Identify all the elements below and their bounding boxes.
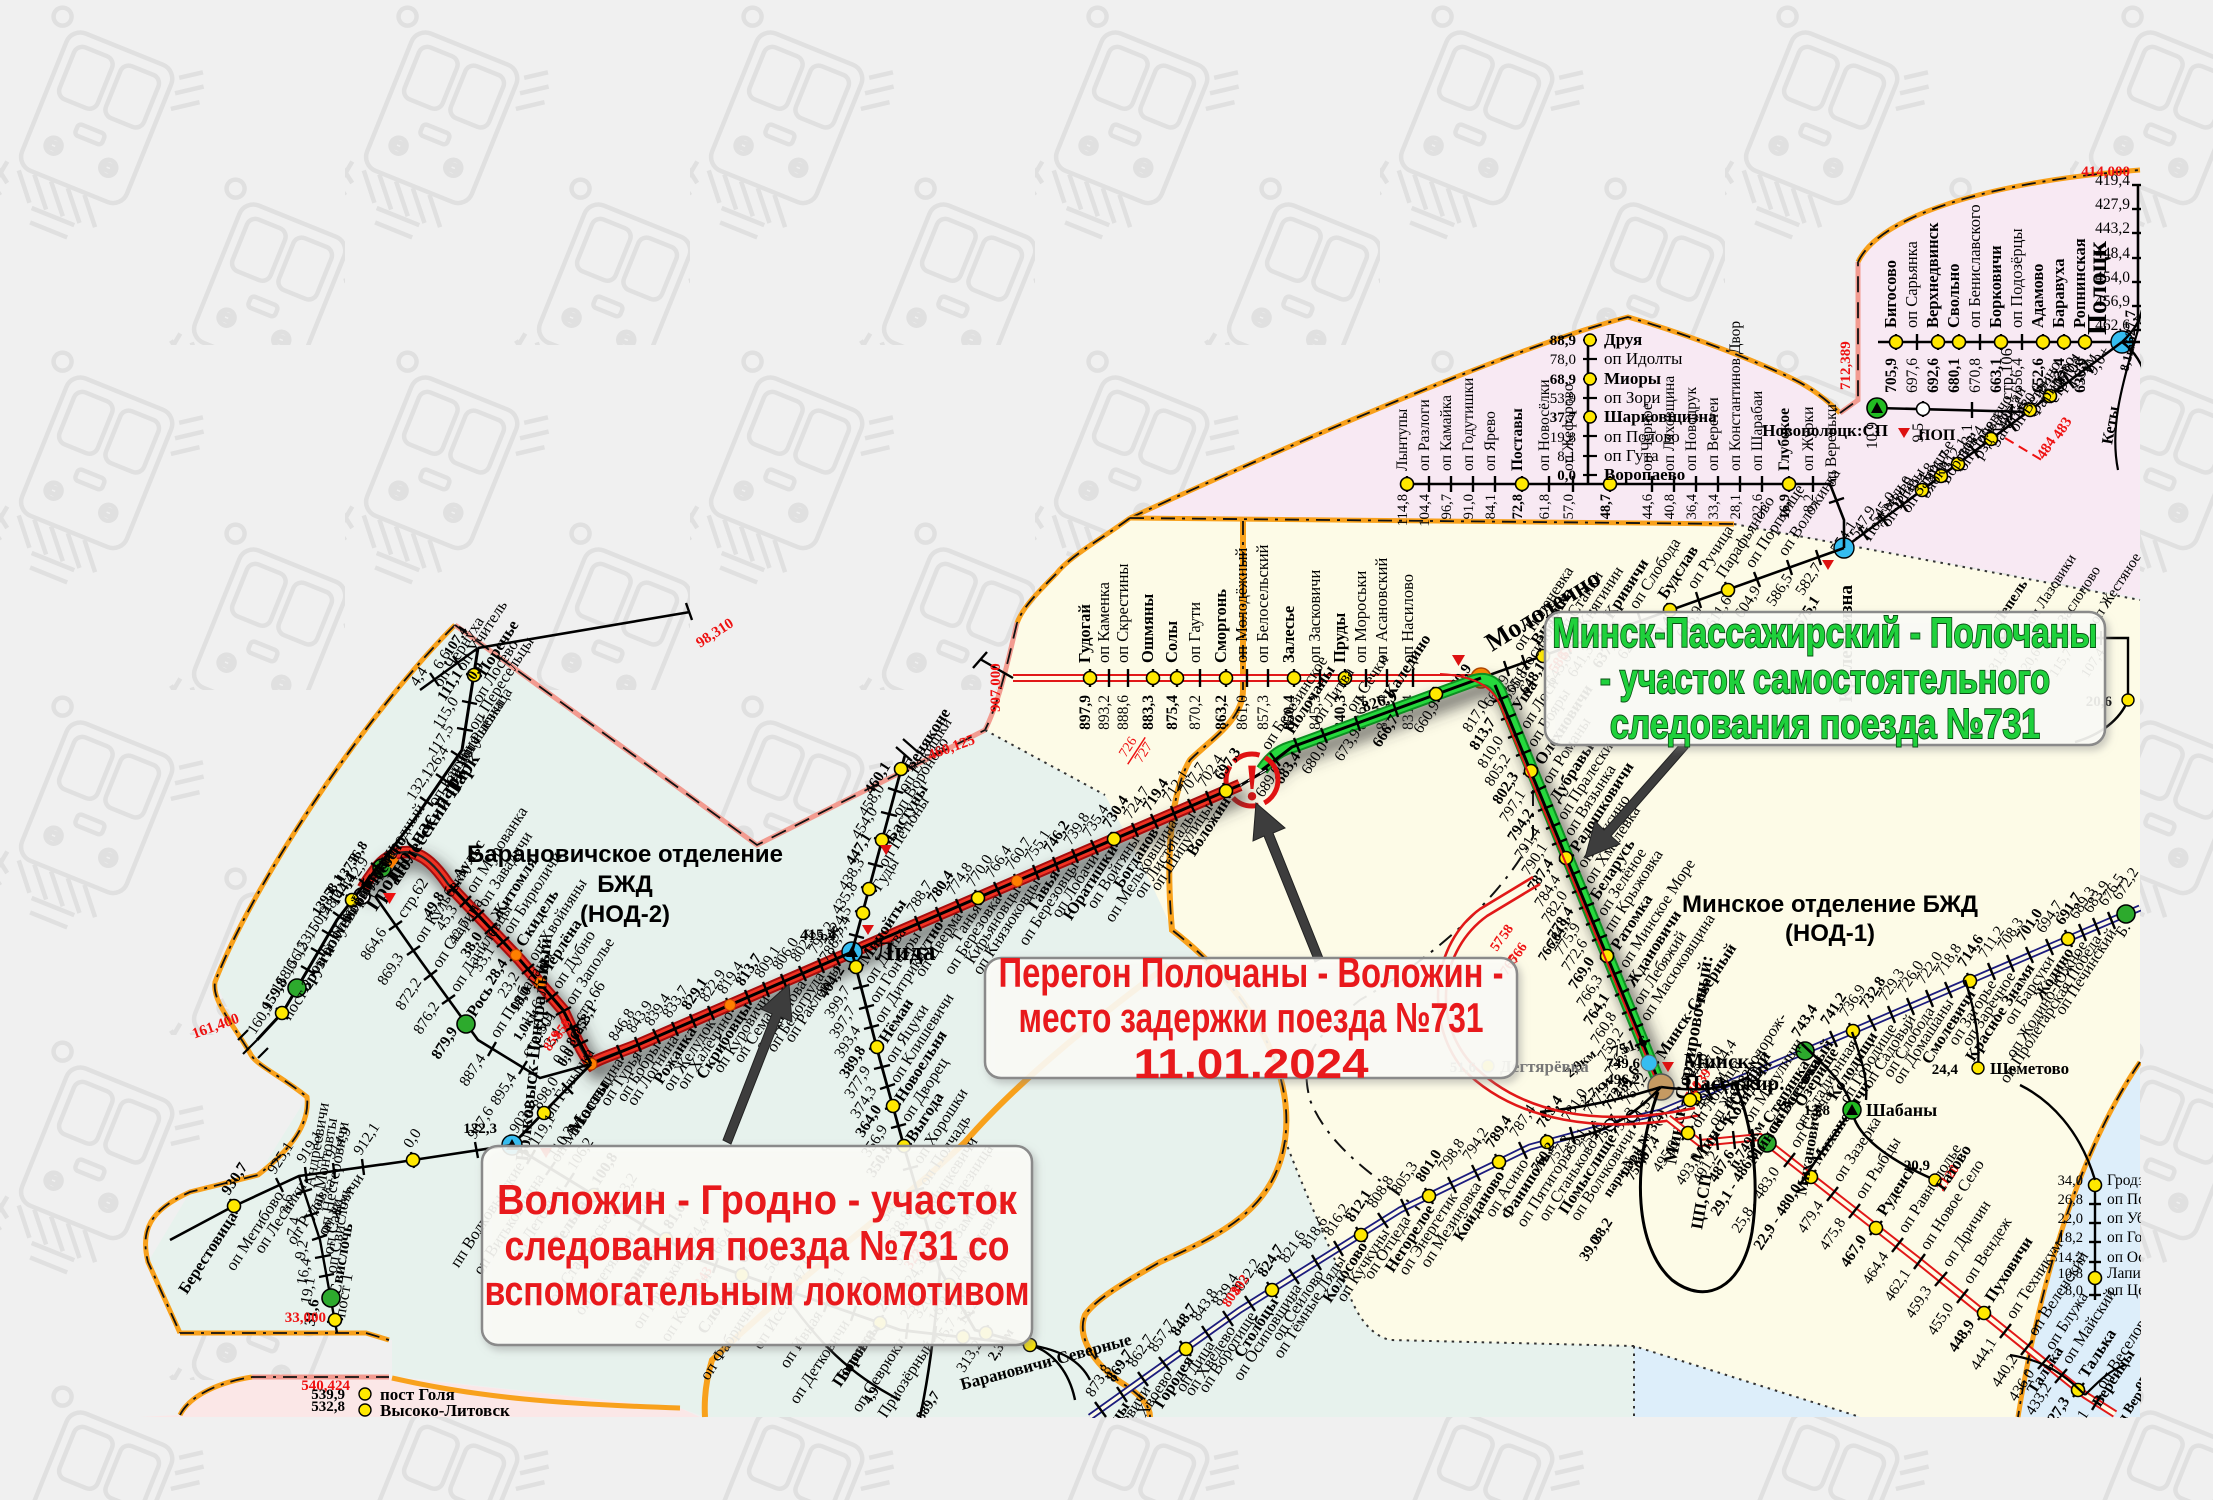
svg-text:Воропаево: Воропаево — [1604, 465, 1685, 484]
svg-text:Минск-Пассажирский - Полочаны: Минск-Пассажирский - Полочаны — [1553, 609, 2098, 656]
svg-text:место задержки поезда №731: место задержки поезда №731 — [1019, 994, 1484, 1041]
svg-text:БЖД: БЖД — [597, 871, 652, 898]
svg-text:Гудогай: Гудогай — [1075, 604, 1094, 663]
svg-text:907,000: 907,000 — [988, 663, 1004, 712]
svg-text:448,4: 448,4 — [2095, 245, 2130, 262]
svg-text:14,2: 14,2 — [2058, 1250, 2083, 1266]
svg-text:72,8: 72,8 — [1510, 494, 1526, 519]
svg-text:Барановичское отделение: Барановичское отделение — [467, 841, 783, 868]
svg-text:Шарковщизна: Шарковщизна — [1604, 407, 1717, 426]
svg-text:оп Бениславского: оп Бениславского — [1965, 204, 1984, 328]
svg-text:19,8: 19,8 — [1550, 430, 1576, 446]
svg-text:692,6: 692,6 — [1925, 358, 1942, 393]
svg-text:оп Разлоги: оп Разлоги — [1416, 399, 1433, 471]
svg-text:Миоры: Миоры — [1604, 369, 1661, 388]
svg-text:оп Полово: оп Полово — [1604, 427, 1680, 446]
svg-text:следования поезда №731: следования поезда №731 — [1610, 700, 2040, 747]
svg-text:Пруды: Пруды — [1330, 613, 1349, 663]
svg-text:Поставы: Поставы — [1509, 408, 1526, 471]
svg-text:оп Камайка: оп Камайка — [1438, 395, 1455, 471]
svg-text:Шеметово: Шеметово — [1990, 1059, 2069, 1078]
svg-text:11.01.2024: 11.01.2024 — [1134, 1040, 1370, 1087]
svg-text:оп Молодёжный: оп Молодёжный — [1232, 547, 1251, 663]
svg-text:28,1: 28,1 — [1728, 494, 1744, 519]
svg-text:33,000: 33,000 — [285, 1310, 326, 1326]
svg-text:Ошмяны: Ошмяны — [1138, 594, 1157, 663]
svg-text:Воложин - Гродно - участок: Воложин - Гродно - участок — [497, 1176, 1018, 1223]
svg-text:893,2: 893,2 — [1096, 695, 1113, 730]
svg-text:оп Журки: оп Журки — [1800, 407, 1817, 471]
svg-text:18,2: 18,2 — [2058, 1230, 2083, 1246]
svg-text:0,0: 0,0 — [1557, 468, 1576, 484]
svg-text:Залесье: Залесье — [1279, 606, 1298, 663]
svg-text:532,8: 532,8 — [311, 1399, 345, 1415]
svg-text:Шабаны: Шабаны — [1866, 1100, 1937, 1120]
svg-text:Адамово: Адамово — [2028, 264, 2047, 328]
svg-text:875,4: 875,4 — [1164, 695, 1181, 730]
svg-text:863,2: 863,2 — [1213, 695, 1230, 730]
svg-text:680,1: 680,1 — [1946, 358, 1963, 393]
svg-text:26,8: 26,8 — [2058, 1192, 2083, 1208]
svg-text:61,8: 61,8 — [1537, 494, 1553, 519]
svg-text:20,9: 20,9 — [1904, 1158, 1930, 1174]
svg-text:883,3: 883,3 — [1140, 695, 1157, 730]
svg-text:8,1: 8,1 — [1557, 449, 1576, 465]
svg-text:456,9: 456,9 — [2095, 293, 2130, 310]
svg-text:861,0: 861,0 — [1234, 695, 1251, 730]
svg-text:705,9: 705,9 — [1883, 358, 1900, 393]
svg-text:!: ! — [1243, 755, 1260, 812]
svg-text:оп Идолты: оп Идолты — [1604, 349, 1683, 368]
svg-text:(НОД-1): (НОД-1) — [1785, 920, 1875, 947]
svg-text:443,2: 443,2 — [2095, 220, 2130, 237]
svg-text:оп Асановский: оп Асановский — [1372, 557, 1391, 663]
svg-text:Верхнедвинск: Верхнедвинск — [1923, 222, 1942, 328]
svg-text:670,8: 670,8 — [1967, 358, 1984, 393]
svg-text:Перегон Полочаны - Воложин -: Перегон Полочаны - Воложин - — [999, 949, 1504, 996]
svg-text:оп Подозёрцы: оп Подозёрцы — [2007, 228, 2026, 328]
svg-text:Свольно: Свольно — [1944, 264, 1963, 329]
svg-text:оп Константинов Двор: оп Константинов Двор — [1727, 321, 1744, 471]
svg-text:8,0: 8,0 — [2065, 1283, 2083, 1299]
svg-text:697,6: 697,6 — [1904, 358, 1921, 393]
svg-text:37,7: 37,7 — [1550, 410, 1577, 426]
svg-text:оп Засковичи: оп Засковичи — [1305, 570, 1324, 663]
svg-text:22,0: 22,0 — [2058, 1211, 2083, 1227]
svg-text:48,7: 48,7 — [1598, 494, 1614, 519]
svg-text:оп Гута: оп Гута — [1604, 446, 1659, 465]
svg-text:7,4: 7,4 — [284, 1215, 304, 1237]
svg-text:Друя: Друя — [1604, 330, 1642, 349]
svg-text:оп Новодрук: оп Новодрук — [1683, 386, 1700, 471]
svg-text:57,0: 57,0 — [1561, 494, 1577, 519]
svg-text:53,9: 53,9 — [1550, 391, 1576, 407]
svg-text:78,0: 78,0 — [1550, 352, 1576, 368]
svg-text:40,8: 40,8 — [1662, 494, 1678, 519]
svg-text:Минское отделение БЖД: Минское отделение БЖД — [1682, 891, 1978, 918]
svg-text:96,7: 96,7 — [1439, 494, 1455, 519]
svg-text:91,0: 91,0 — [1461, 494, 1477, 519]
svg-text:оп Ярево: оп Ярево — [1482, 411, 1499, 471]
svg-text:44,6: 44,6 — [1640, 494, 1656, 519]
svg-text:оп Шарабаи: оп Шарабаи — [1749, 391, 1766, 471]
svg-text:68,9: 68,9 — [1550, 372, 1576, 388]
svg-text:462,6: 462,6 — [2095, 317, 2130, 334]
svg-text:Борковичи: Борковичи — [1986, 245, 2005, 328]
svg-text:33,4: 33,4 — [1706, 493, 1722, 519]
svg-text:вспомогательным локомотивом: вспомогательным локомотивом — [485, 1267, 1030, 1314]
svg-text:34,0: 34,0 — [2058, 1173, 2083, 1189]
svg-text:оп Сарьянка: оп Сарьянка — [1902, 241, 1921, 328]
svg-text:36,4: 36,4 — [1684, 493, 1700, 519]
svg-text:Лынтупы: Лынтупы — [1394, 408, 1411, 471]
svg-text:10,8: 10,8 — [2058, 1266, 2083, 1282]
svg-text:414,000: 414,000 — [2081, 164, 2130, 180]
svg-text:оп Годутишки: оп Годутишки — [1460, 378, 1477, 471]
svg-text:Глубокое: Глубокое — [1776, 408, 1793, 471]
svg-text:Сморгонь: Сморгонь — [1211, 589, 1230, 663]
svg-text:оп Каменка: оп Каменка — [1094, 581, 1113, 663]
svg-text:следования поезда №731 со: следования поезда №731 со — [505, 1222, 1010, 1269]
svg-text:88,9: 88,9 — [1550, 333, 1576, 349]
svg-text:888,6: 888,6 — [1115, 695, 1132, 730]
svg-text:оп Скрестины: оп Скрестины — [1113, 564, 1132, 664]
svg-text:114,8: 114,8 — [1395, 494, 1411, 526]
svg-text:870,2: 870,2 — [1187, 695, 1204, 730]
svg-text:84,1: 84,1 — [1483, 494, 1499, 519]
svg-text:24,4: 24,4 — [1932, 1062, 1959, 1078]
svg-text:Высоко-Литовск: Высоко-Литовск — [380, 1401, 510, 1420]
svg-text:712,389: 712,389 — [1838, 341, 1854, 390]
svg-text:(НОД-2): (НОД-2) — [580, 901, 670, 928]
svg-text:Солы: Солы — [1162, 621, 1181, 663]
svg-text:ПОП: ПОП — [1918, 427, 1956, 444]
svg-text:оп Гаути: оп Гаути — [1185, 602, 1204, 663]
svg-text:оп Белосельский: оп Белосельский — [1253, 544, 1272, 663]
svg-text:3,6: 3,6 — [277, 1192, 297, 1214]
svg-text:Баравуха: Баравуха — [2049, 259, 2068, 328]
svg-text:104,4: 104,4 — [1417, 493, 1433, 526]
svg-text:454,0: 454,0 — [2095, 269, 2130, 286]
svg-text:427,9: 427,9 — [2095, 196, 2130, 213]
svg-text:897,9: 897,9 — [1077, 695, 1094, 730]
svg-text:оп Зори: оп Зори — [1604, 388, 1660, 407]
svg-text:оп Мороськи: оп Мороськи — [1351, 571, 1370, 663]
svg-text:Бигосово: Бигосово — [1881, 260, 1900, 328]
svg-text:- участок самостоятельного: - участок самостоятельного — [1600, 655, 2050, 702]
svg-text:749,6: 749,6 — [1606, 1056, 1640, 1072]
